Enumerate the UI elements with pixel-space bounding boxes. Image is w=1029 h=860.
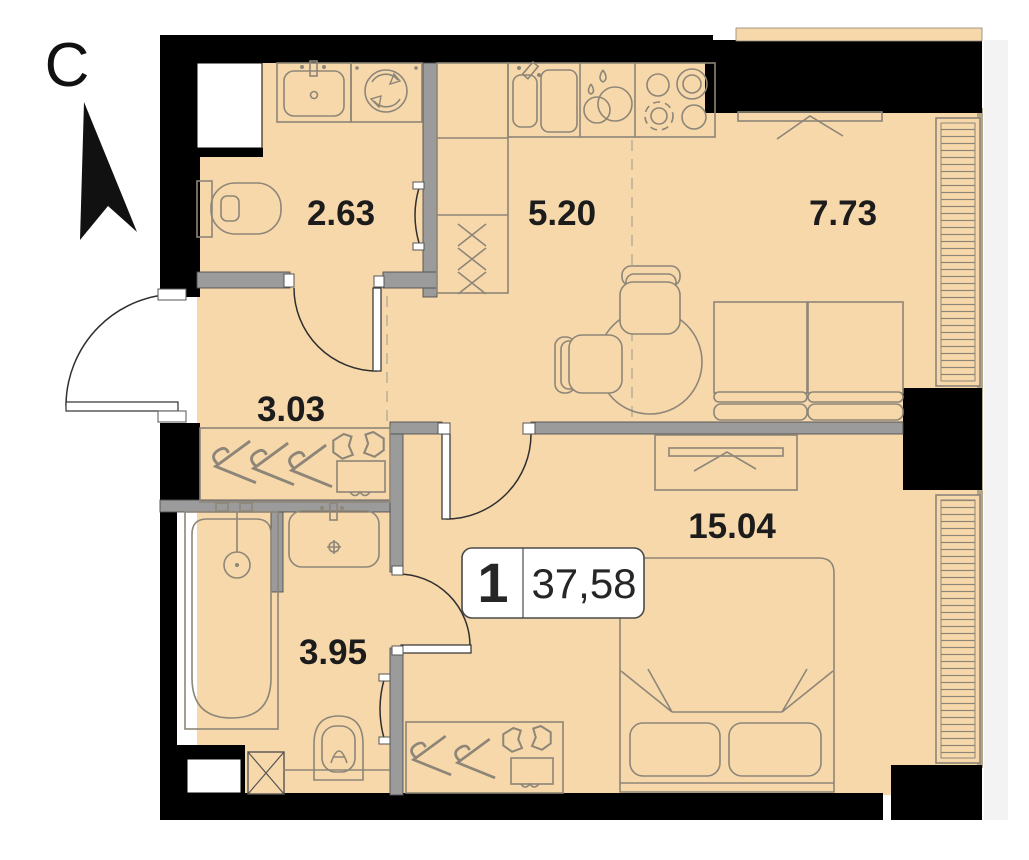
- bed-icon: [620, 558, 834, 792]
- outside-strip: [984, 40, 1008, 820]
- wall-left-mid: [160, 423, 200, 503]
- wall-pier-right-bottom: [891, 765, 982, 820]
- wall-left-lower: [160, 503, 177, 795]
- window-band-top: [736, 28, 982, 41]
- area-label-hallway: 3.03: [257, 390, 325, 429]
- wall-pier-right-mid: [903, 388, 982, 490]
- wall-bottom: [160, 793, 883, 820]
- radiator-bottom: [936, 495, 980, 763]
- total-area: 37,58: [531, 560, 636, 607]
- compass: С: [45, 31, 137, 240]
- area-label-living: 7.73: [809, 194, 877, 233]
- area-label-bedroom: 15.04: [688, 507, 776, 546]
- shaft-top-left: [197, 63, 262, 148]
- shaft-bottom-left: [187, 759, 241, 793]
- area-label-wc: 2.63: [307, 194, 375, 233]
- entrance-door: [66, 289, 186, 422]
- floor-plan-page: 2.63 5.20 7.73 3.03 15.04 3.95 1 37,58 С: [0, 0, 1029, 860]
- wall-top-right: [705, 40, 982, 113]
- vent-box: [248, 752, 284, 794]
- north-label: С: [45, 31, 90, 100]
- floor-plan-drawing: 2.63 5.20 7.73 3.03 15.04 3.95 1 37,58 С: [0, 0, 1029, 860]
- north-arrow-icon: [80, 102, 137, 240]
- chair-left-icon: [555, 335, 622, 393]
- area-label-kitchen: 5.20: [528, 194, 596, 233]
- wall-left-upper: [160, 35, 200, 297]
- radiator-top: [936, 118, 980, 386]
- rooms-count: 1: [477, 551, 508, 614]
- wall-top: [160, 35, 713, 63]
- unit-badge: 1 37,58: [462, 548, 644, 618]
- chair-top-icon: [620, 266, 680, 334]
- area-label-bathroom: 3.95: [299, 633, 367, 672]
